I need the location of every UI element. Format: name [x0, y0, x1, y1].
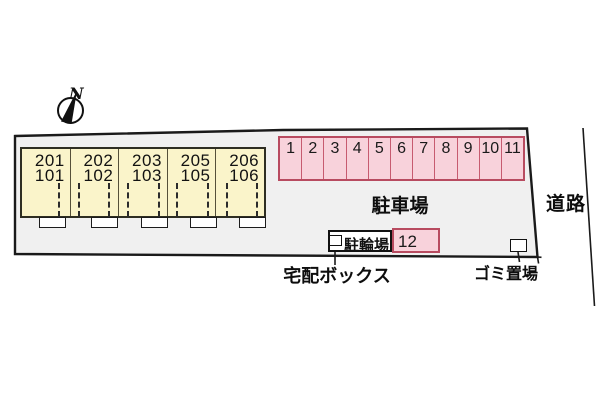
- parking-space: 1: [280, 138, 302, 179]
- entrance-dashed-line: [78, 183, 80, 217]
- entrance-porch: [141, 217, 168, 228]
- entrance-dashed-line: [256, 183, 258, 217]
- parking-space: 8: [435, 138, 457, 179]
- parking-space: 4: [347, 138, 369, 179]
- unit-lower-number: 105: [172, 168, 220, 183]
- unit-cell: 201 101: [22, 149, 71, 216]
- unit-lower-number: 103: [123, 168, 171, 183]
- unit-lower-number: 106: [220, 168, 268, 183]
- garbage-area-label: ゴミ置場: [472, 260, 540, 284]
- entrance-dashed-line: [226, 183, 228, 217]
- road-edge-line: [583, 128, 595, 306]
- entrance-dashed-line: [158, 183, 160, 217]
- parking-space: 11: [502, 138, 523, 179]
- site-plan: N 201 101 202 102 203 103 205 105 206 10…: [0, 0, 600, 400]
- parking-space: 5: [369, 138, 391, 179]
- parking-row: 1 2 3 4 5 6 7 8 9 10 11: [278, 136, 525, 181]
- entrance-dashed-line: [58, 183, 60, 217]
- road-label: 道路: [546, 189, 586, 216]
- unit-lower-number: 102: [75, 168, 123, 183]
- entrance-porch: [91, 217, 118, 228]
- entrance-dashed-line: [127, 183, 129, 217]
- parking-space: 2: [302, 138, 324, 179]
- parking-space: 9: [458, 138, 480, 179]
- entrance-dashed-line: [207, 183, 209, 217]
- parking-space: 7: [413, 138, 435, 179]
- parking-space-12: 12: [392, 228, 440, 253]
- entrance-dashed-line: [108, 183, 110, 217]
- unit-lower-number: 101: [26, 168, 74, 183]
- delivery-box-label: 宅配ボックス: [280, 262, 394, 288]
- entrance-porch: [239, 217, 266, 228]
- parking-area-label: 駐車場: [354, 191, 446, 218]
- garbage-area-square: [510, 239, 527, 252]
- entrance-porch: [190, 217, 217, 228]
- compass-north-label: N: [69, 84, 89, 102]
- apartment-building: 201 101 202 102 203 103 205 105 206 106: [20, 147, 266, 218]
- entrance-dashed-line: [176, 183, 178, 217]
- parking-space: 6: [391, 138, 413, 179]
- entrance-porch: [39, 217, 66, 228]
- parking-space: 3: [324, 138, 346, 179]
- delivery-box-square: [329, 235, 342, 246]
- parking-space: 10: [480, 138, 502, 179]
